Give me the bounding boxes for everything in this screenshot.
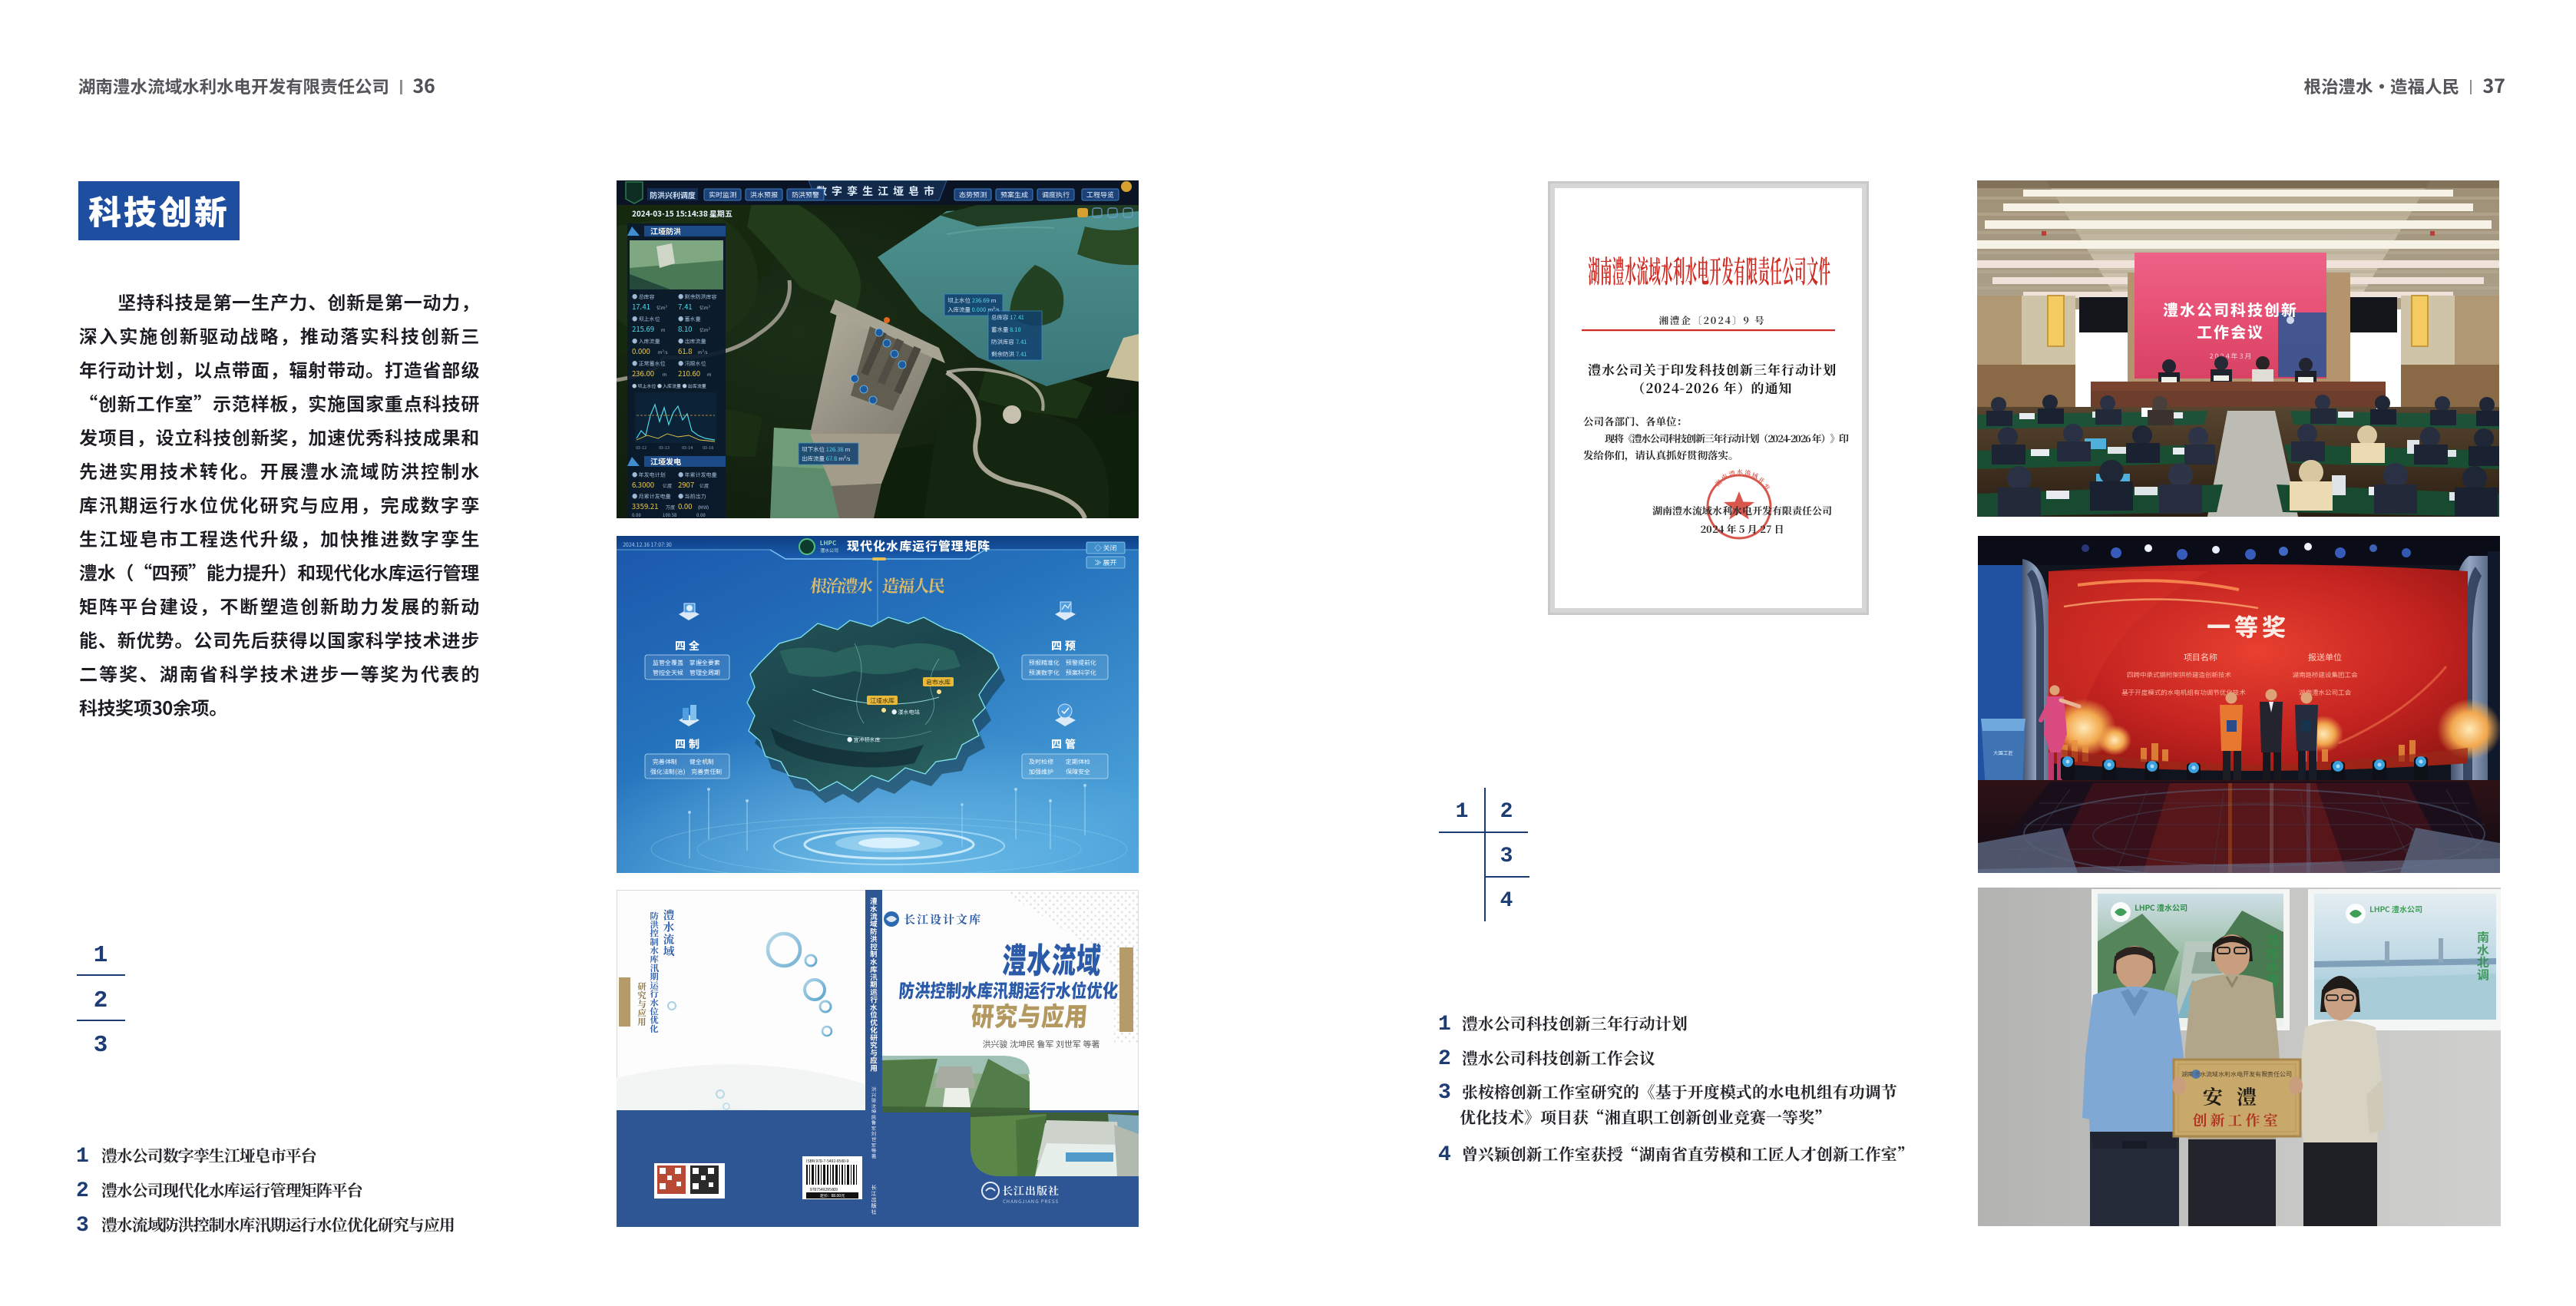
svg-text:蓄水量 8.10: 蓄水量 8.10 bbox=[991, 326, 1021, 334]
svg-text:南水北调: 南水北调 bbox=[2474, 931, 2492, 980]
svg-text:3359.21: 3359.21 bbox=[632, 501, 658, 511]
svg-text:强化法制(治) 完善责任制: 强化法制(治) 完善责任制 bbox=[650, 768, 722, 776]
svg-text:剩余防洪 7.41: 剩余防洪 7.41 bbox=[991, 350, 1027, 359]
svg-text:≫ 展开: ≫ 展开 bbox=[1094, 557, 1116, 567]
svg-text:(MW): (MW) bbox=[698, 504, 709, 511]
svg-text:四管: 四管 bbox=[1051, 736, 1079, 752]
svg-text:2024 年 5 月 27 日: 2024 年 5 月 27 日 bbox=[1700, 521, 1784, 536]
svg-text:03-13: 03-13 bbox=[659, 445, 670, 451]
svg-text:215.69: 215.69 bbox=[632, 323, 654, 334]
svg-text:水: 水 bbox=[1735, 468, 1743, 477]
svg-text:湖南澧水流域水利水电开发有限责任公司: 湖南澧水流域水利水电开发有限责任公司 bbox=[1652, 503, 1832, 517]
svg-text:◇ 关闭: ◇ 关闭 bbox=[1094, 543, 1116, 553]
svg-text:LHPC 澧水公司: LHPC 澧水公司 bbox=[2135, 901, 2187, 913]
svg-text:江垭发电: 江垭发电 bbox=[650, 455, 682, 467]
svg-text:● 剩余防洪库容: ● 剩余防洪库容 bbox=[678, 293, 717, 301]
svg-text:报送单位: 报送单位 bbox=[2308, 651, 2342, 663]
svg-text:100.58: 100.58 bbox=[663, 511, 677, 518]
svg-text:ISBN 978-7-5492-9560-9: ISBN 978-7-5492-9560-9 bbox=[806, 1159, 849, 1164]
svg-text:● 汛限水位: ● 汛限水位 bbox=[678, 360, 706, 368]
svg-text:61.8: 61.8 bbox=[678, 346, 692, 356]
svg-text:工程导览: 工程导览 bbox=[1086, 190, 1114, 200]
svg-text:现代化水库运行管理矩阵: 现代化水库运行管理矩阵 bbox=[847, 536, 990, 554]
svg-text:公司各部门、各单位：: 公司各部门、各单位： bbox=[1583, 413, 1687, 428]
svg-text:湖南路桥建设集团工会: 湖南路桥建设集团工会 bbox=[2292, 670, 2358, 679]
svg-text:及时检修 定期体检: 及时检修 定期体检 bbox=[1029, 758, 1090, 766]
svg-text:数字孪生江垭皂市: 数字孪生江垭皂市 bbox=[816, 184, 939, 199]
svg-text:m: m bbox=[663, 371, 667, 378]
svg-text:预报精准化 预警提前化: 预报精准化 预警提前化 bbox=[1028, 659, 1096, 667]
svg-text:2024.12.16 17:07:30: 2024.12.16 17:07:30 bbox=[623, 541, 672, 549]
svg-text:四制: 四制 bbox=[675, 736, 703, 752]
svg-text:调度执行: 调度执行 bbox=[1042, 190, 1070, 200]
svg-text:项目名称: 项目名称 bbox=[2184, 651, 2217, 663]
svg-text:管控全天候 管理全周期: 管控全天候 管理全周期 bbox=[653, 669, 720, 677]
svg-text:防洪兴利调度: 防洪兴利调度 bbox=[650, 189, 696, 200]
svg-text:流: 流 bbox=[1744, 468, 1751, 478]
svg-text:9787549295609: 9787549295609 bbox=[810, 1187, 838, 1192]
svg-text:03-14: 03-14 bbox=[682, 445, 693, 451]
svg-text:● 总库容: ● 总库容 bbox=[632, 293, 655, 301]
svg-text:澧水公司关于印发科技创新三年行动计划: 澧水公司关于印发科技创新三年行动计划 bbox=[1588, 359, 1837, 379]
svg-text:实时监测: 实时监测 bbox=[709, 190, 736, 200]
svg-text:0.000: 0.000 bbox=[632, 346, 650, 356]
svg-text:坝下水位 126.38 m: 坝下水位 126.38 m bbox=[802, 445, 850, 454]
svg-text:发给你们，请认真抓好贯彻落实。: 发给你们，请认真抓好贯彻落实。 bbox=[1583, 447, 1739, 462]
svg-text:万度: 万度 bbox=[666, 504, 676, 511]
svg-text:m³/s: m³/s bbox=[658, 349, 668, 355]
svg-text:创新工作室: 创新工作室 bbox=[2192, 1109, 2280, 1130]
svg-text:长江出版社: 长江出版社 bbox=[871, 1184, 878, 1216]
svg-text:亿m³: 亿m³ bbox=[699, 326, 711, 333]
svg-text:8.10: 8.10 bbox=[678, 323, 692, 334]
svg-text:研究与应用: 研究与应用 bbox=[970, 997, 1090, 1034]
svg-text:总库容 17.41: 总库容 17.41 bbox=[991, 313, 1024, 322]
svg-text:长江出版社: 长江出版社 bbox=[1002, 1183, 1060, 1199]
svg-text:出库流量 67.8 m³/s: 出库流量 67.8 m³/s bbox=[802, 455, 851, 463]
svg-text:江垭防洪: 江垭防洪 bbox=[650, 225, 681, 236]
svg-text:防洪预警: 防洪预警 bbox=[792, 190, 820, 200]
svg-text:澧水流域: 澧水流域 bbox=[663, 907, 675, 959]
svg-text:2024-03-15 15:14:38 星期五: 2024-03-15 15:14:38 星期五 bbox=[632, 207, 732, 219]
svg-text:工作会议: 工作会议 bbox=[2197, 320, 2264, 342]
svg-text:● 溇水电站: ● 溇水电站 bbox=[891, 709, 920, 716]
svg-text:洪兴骏 沈坤民 鲁军 刘世军 等著: 洪兴骏 沈坤民 鲁军 刘世军 等著 bbox=[983, 1038, 1100, 1050]
svg-text:7.41: 7.41 bbox=[678, 301, 692, 312]
svg-text:LHPC 澧水公司: LHPC 澧水公司 bbox=[2369, 903, 2422, 914]
svg-text:m: m bbox=[661, 326, 666, 333]
svg-text:17.41: 17.41 bbox=[632, 301, 650, 312]
svg-text:● 宜冲桥水库: ● 宜冲桥水库 bbox=[847, 736, 881, 744]
svg-text:● 坝上水位 ● 入库流量 ● 出库流量: ● 坝上水位 ● 入库流量 ● 出库流量 bbox=[632, 382, 706, 389]
svg-text:● 年发电计划: ● 年发电计划 bbox=[632, 471, 666, 479]
svg-text:加强维护 保障安全: 加强维护 保障安全 bbox=[1028, 768, 1091, 776]
svg-text:亿m³: 亿m³ bbox=[699, 304, 711, 311]
svg-text:● 坝上水位: ● 坝上水位 bbox=[632, 316, 660, 323]
svg-text:防洪控制水库汛期运行水位优化: 防洪控制水库汛期运行水位优化 bbox=[650, 910, 659, 1035]
svg-text:完善体制 健全机制: 完善体制 健全机制 bbox=[652, 758, 714, 766]
svg-text:皂市水库: 皂市水库 bbox=[926, 679, 951, 687]
svg-text:03-12: 03-12 bbox=[636, 445, 646, 451]
svg-text:预演数字化 预案科学化: 预演数字化 预案科学化 bbox=[1028, 669, 1096, 677]
svg-text:澧水流域防洪控制水库汛期运行水位优化研究与应用: 澧水流域防洪控制水库汛期运行水位优化研究与应用 bbox=[869, 895, 878, 1073]
svg-text:（2024-2026 年）的通知: （2024-2026 年）的通知 bbox=[1632, 378, 1792, 397]
svg-text:亿度: 亿度 bbox=[699, 482, 709, 489]
svg-text:2907: 2907 bbox=[678, 479, 694, 490]
svg-text:6.3000: 6.3000 bbox=[632, 479, 654, 490]
svg-text:防洪库容 7.41: 防洪库容 7.41 bbox=[991, 338, 1027, 346]
svg-text:● 出库流量: ● 出库流量 bbox=[678, 338, 706, 346]
svg-text:0.00: 0.00 bbox=[632, 511, 641, 518]
svg-text:一等奖: 一等奖 bbox=[2207, 608, 2290, 643]
svg-text:● 月累计发电量: ● 月累计发电量 bbox=[632, 493, 671, 501]
svg-text:江垭水库: 江垭水库 bbox=[870, 697, 894, 706]
svg-text:236.00: 236.00 bbox=[632, 368, 654, 379]
svg-text:监管全覆盖 掌握全要素: 监管全覆盖 掌握全要素 bbox=[653, 659, 720, 667]
svg-text:乌市水库: 乌市水库 bbox=[2264, 934, 2283, 987]
svg-text:态势预测: 态势预测 bbox=[959, 190, 987, 200]
svg-text:● 当前出力: ● 当前出力 bbox=[678, 493, 706, 501]
svg-text:大国工匠: 大国工匠 bbox=[1993, 749, 2014, 756]
svg-text:亿度: 亿度 bbox=[663, 482, 673, 489]
svg-text:210.60: 210.60 bbox=[678, 368, 700, 379]
svg-text:亿m³: 亿m³ bbox=[656, 304, 668, 311]
svg-text:研究与应用: 研究与应用 bbox=[637, 980, 646, 1028]
svg-text:m: m bbox=[707, 371, 712, 378]
svg-text:CHANGJIANG PRESS: CHANGJIANG PRESS bbox=[1003, 1198, 1059, 1205]
svg-text:m³/s: m³/s bbox=[698, 349, 708, 355]
svg-text:澧水公司科技创新: 澧水公司科技创新 bbox=[2163, 298, 2298, 320]
svg-text:● 蓄水量: ● 蓄水量 bbox=[678, 316, 701, 323]
svg-text:洪兴骏沈坤民鲁军刘世军等著: 洪兴骏沈坤民鲁军刘世军等著 bbox=[871, 1085, 877, 1159]
svg-text:坝上水位 236.69 m: 坝上水位 236.69 m bbox=[947, 296, 996, 305]
svg-text:● 年累计发电量: ● 年累计发电量 bbox=[678, 471, 717, 479]
svg-text:● 正常蓄水位: ● 正常蓄水位 bbox=[632, 360, 666, 368]
svg-text:现将《澧水公司科技创新三年行动计划（2024-2026 年）: 现将《澧水公司科技创新三年行动计划（2024-2026 年）》印 bbox=[1605, 431, 1849, 445]
svg-text:● 入库流量: ● 入库流量 bbox=[632, 338, 660, 346]
svg-text:四预: 四预 bbox=[1051, 638, 1079, 653]
svg-text:03-16: 03-16 bbox=[703, 445, 713, 451]
svg-text:安澧: 安澧 bbox=[2203, 1082, 2270, 1110]
svg-text:长江设计文库: 长江设计文库 bbox=[904, 911, 982, 927]
svg-text:湘澧企〔2024〕9 号: 湘澧企〔2024〕9 号 bbox=[1658, 313, 1765, 327]
svg-text:澧水公司: 澧水公司 bbox=[820, 547, 838, 554]
svg-text:0.00: 0.00 bbox=[678, 501, 692, 511]
svg-text:预案生成: 预案生成 bbox=[1000, 190, 1028, 200]
svg-text:四跨中承式钢桁架拱桥建造创新技术: 四跨中承式钢桁架拱桥建造创新技术 bbox=[2127, 670, 2232, 679]
svg-text:四全: 四全 bbox=[675, 638, 703, 653]
svg-text:定价：88.00元: 定价：88.00元 bbox=[820, 1193, 845, 1199]
svg-text:0.00: 0.00 bbox=[696, 511, 706, 518]
svg-text:洪水预报: 洪水预报 bbox=[750, 190, 779, 200]
